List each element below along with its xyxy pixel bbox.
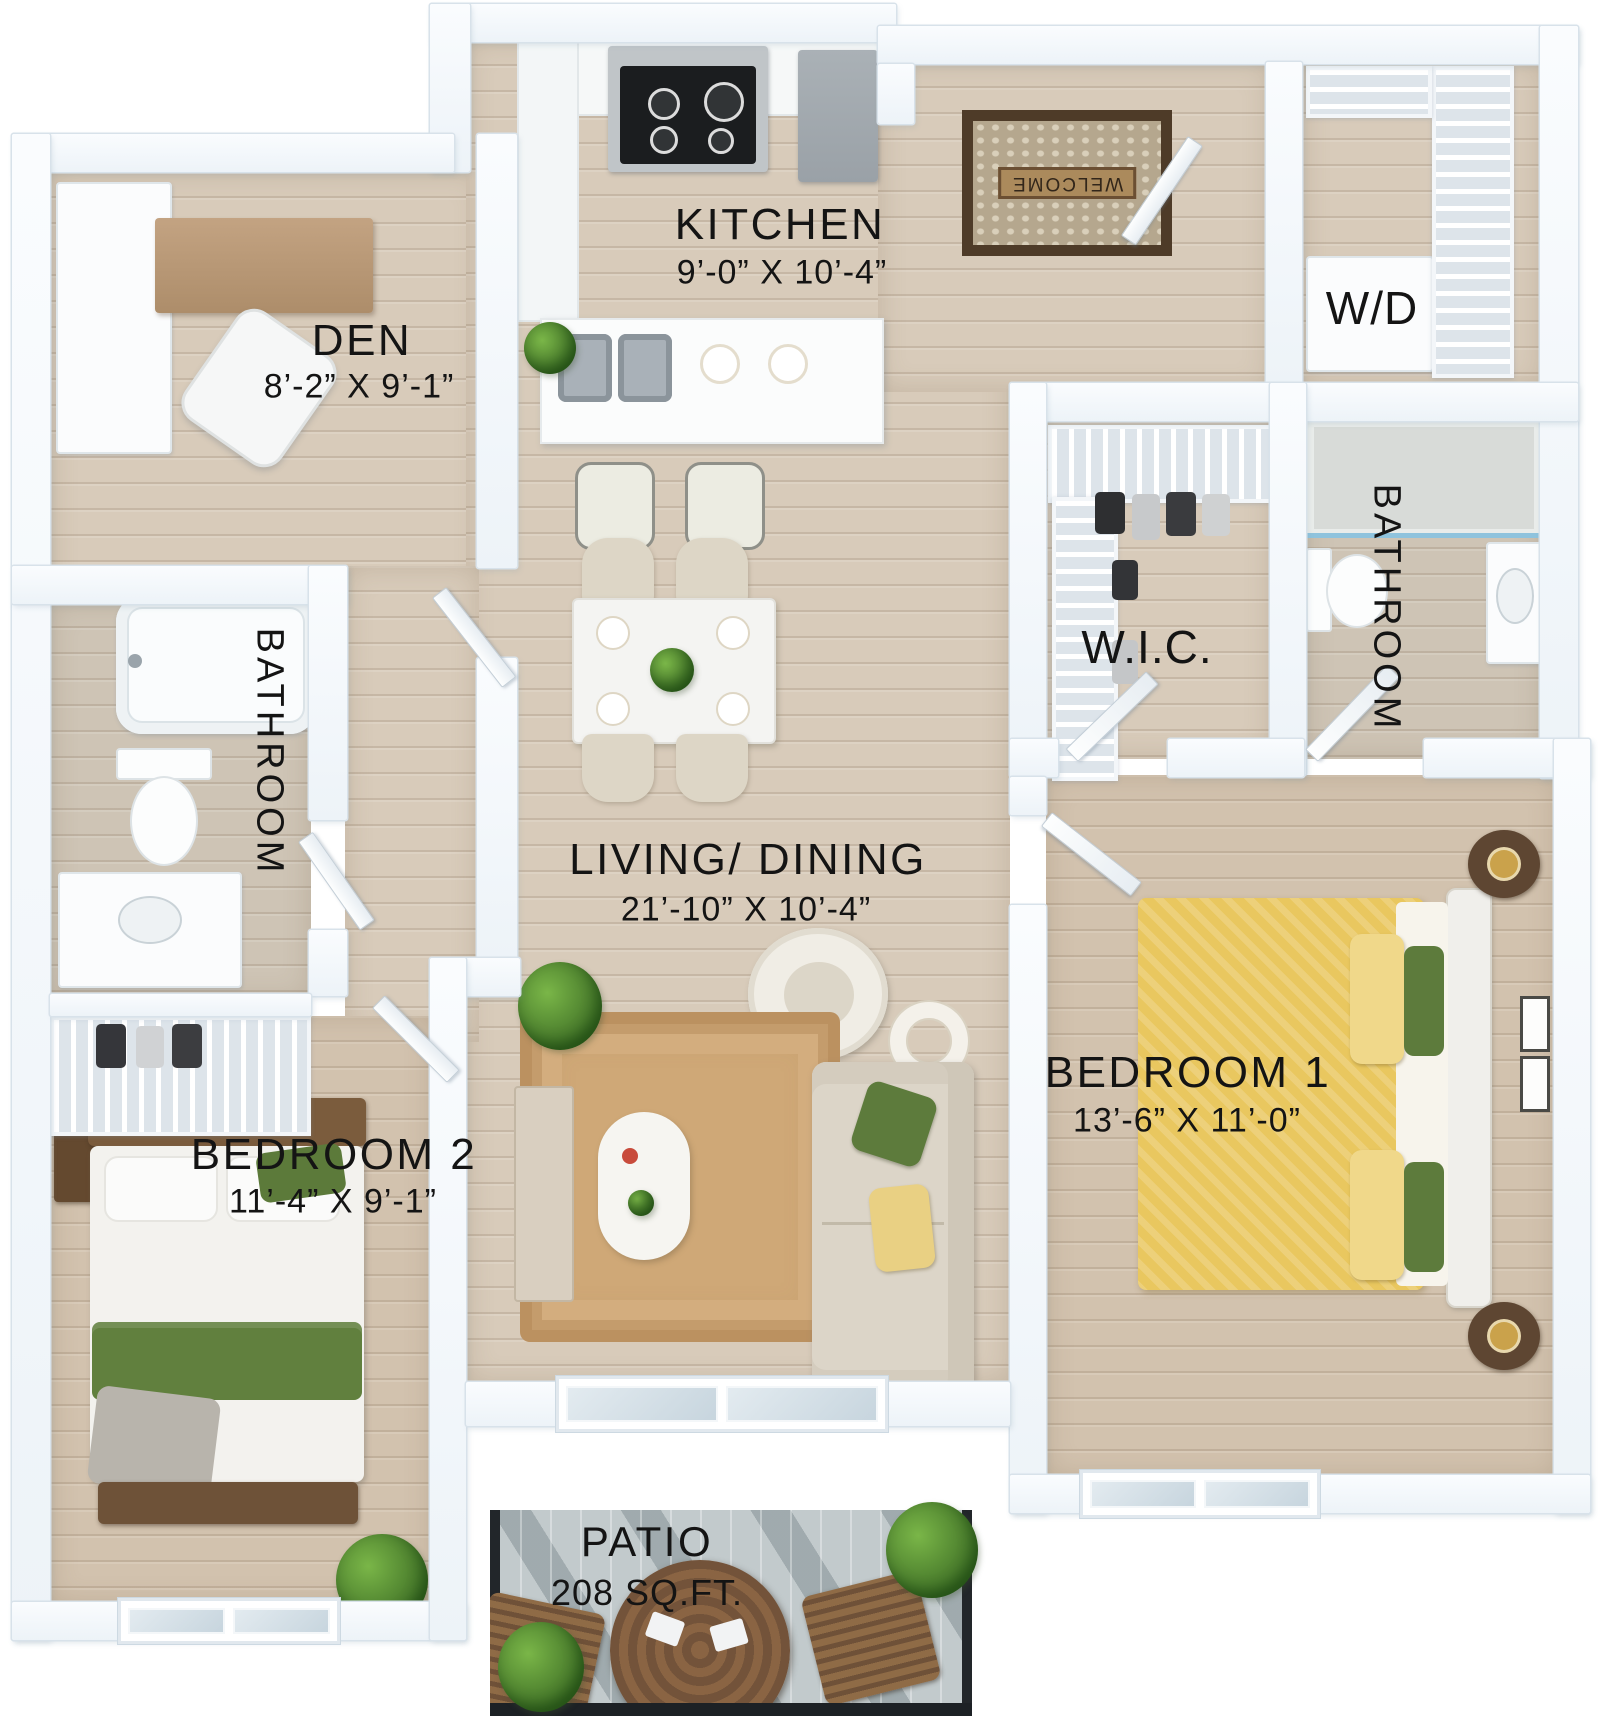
wall (1270, 383, 1306, 775)
window-pane (1204, 1480, 1310, 1508)
shower (1306, 419, 1542, 537)
floor-plan: WELCOME (0, 0, 1600, 1728)
bed2-bench (98, 1482, 358, 1524)
burner (648, 88, 680, 120)
hanging-clothes (1202, 494, 1230, 536)
kitchen-label: KITCHEN (675, 200, 886, 250)
hanging-clothes (1132, 494, 1160, 540)
bathroom-left-sink (118, 896, 182, 944)
kitchen-cabinet-left (517, 40, 579, 322)
dining-plate (596, 616, 630, 650)
coffee-table-item (622, 1148, 638, 1164)
wic-label: W.I.C. (1081, 620, 1212, 674)
wall (1168, 739, 1304, 777)
patio-dims: 208 SQ.FT. (551, 1572, 743, 1614)
bed1-pillow-yellow (1350, 1150, 1404, 1280)
hanging-clothes (1095, 492, 1125, 534)
wic-shelf-top (1048, 425, 1276, 503)
wd-wire-shelf (1432, 66, 1514, 378)
wall (12, 134, 50, 1640)
tub-faucet (128, 654, 142, 668)
living-window (556, 1376, 888, 1432)
hanging-clothes (96, 1024, 126, 1068)
bed2-throw-gray (86, 1385, 221, 1497)
window-pane (233, 1608, 330, 1634)
wall (878, 1382, 1010, 1426)
dining-plate (716, 692, 750, 726)
bedroom2-label: BEDROOM 2 (191, 1130, 478, 1180)
den-label: DEN (312, 316, 412, 366)
island-stool (685, 462, 765, 550)
bathroom-right-sink (1496, 568, 1534, 624)
dining-centerpiece (650, 648, 694, 692)
window-pane (566, 1386, 718, 1422)
wall (878, 26, 1578, 64)
patio-plant-upper (886, 1502, 978, 1598)
wall (50, 994, 311, 1016)
wall (477, 134, 517, 568)
bedroom1-dims: 13’-6” X 11’-0” (1073, 1102, 1301, 1141)
bedroom1-window (1080, 1470, 1320, 1518)
wall (1554, 739, 1590, 1513)
island-stool (575, 462, 655, 550)
window-pane (726, 1386, 878, 1422)
wall (1010, 383, 1046, 775)
dining-plate (716, 616, 750, 650)
shower-glass (1306, 533, 1542, 538)
bed1-pillow-green (1404, 1162, 1444, 1272)
wall (1266, 62, 1302, 383)
burner (650, 126, 678, 154)
hanging-clothes (172, 1024, 202, 1068)
dining-chair (676, 734, 748, 802)
living-dining-dims: 21’-10” X 10’-4” (621, 891, 871, 930)
wall (430, 4, 896, 42)
hanging-clothes (1112, 560, 1138, 600)
wall (12, 566, 347, 604)
patio-label: PATIO (581, 1518, 713, 1566)
living-plant (518, 962, 602, 1050)
dining-chair (582, 734, 654, 802)
wall-frame (1520, 1056, 1550, 1112)
bedroom1-label: BEDROOM 1 (1045, 1048, 1332, 1098)
wd-wire-shelf-top (1306, 66, 1432, 118)
coffee-table (598, 1112, 690, 1260)
kitchen-sink (618, 334, 672, 402)
patio-plant (498, 1622, 584, 1712)
wall (12, 134, 454, 172)
coffee-table-sprig (628, 1190, 654, 1216)
kitchen-appliance (798, 50, 878, 182)
den-desk (155, 218, 373, 313)
kitchen-dims: 9’-0” X 10’-4” (677, 254, 888, 293)
wall (477, 658, 517, 958)
burner (704, 82, 744, 122)
wall (1010, 905, 1046, 1513)
nightstand-lamp (1490, 850, 1518, 878)
bed1-pillow-yellow (1350, 934, 1404, 1064)
dining-chair (582, 538, 654, 606)
wall (466, 1382, 566, 1426)
wd-label: W/D (1326, 281, 1418, 335)
dining-plate (596, 692, 630, 726)
bathroom-right-label: BATHROOM (1365, 484, 1408, 733)
wall-frame (1520, 996, 1550, 1052)
living-dining-label: LIVING/ DINING (569, 835, 927, 885)
bed1-pillow-green (1404, 946, 1444, 1056)
island-plate (700, 344, 740, 384)
den-dims: 8’-2” X 9’-1” (264, 368, 455, 407)
window-pane (1090, 1480, 1196, 1508)
console-table (514, 1086, 574, 1302)
bed1-headboard (1446, 888, 1492, 1308)
burner (708, 128, 734, 154)
bedroom2-dims: 11’-4” X 9’-1” (229, 1183, 437, 1222)
nightstand-lamp (1490, 1322, 1518, 1350)
wall (309, 930, 347, 996)
hanging-clothes (136, 1026, 164, 1068)
island-plant (524, 322, 576, 374)
window-pane (128, 1608, 225, 1634)
wall (1010, 739, 1058, 777)
welcome-mat-text: WELCOME (998, 167, 1136, 199)
bedroom2-window (118, 1598, 340, 1644)
dining-chair (676, 538, 748, 606)
hanging-clothes (1166, 492, 1196, 536)
wall (309, 566, 347, 820)
toilet-bowl (130, 776, 198, 866)
wall (878, 64, 914, 124)
bathroom-left-label: BATHROOM (248, 628, 291, 877)
island-plate (768, 344, 808, 384)
sofa-pillow-yellow (868, 1183, 936, 1273)
wall (1010, 777, 1046, 815)
